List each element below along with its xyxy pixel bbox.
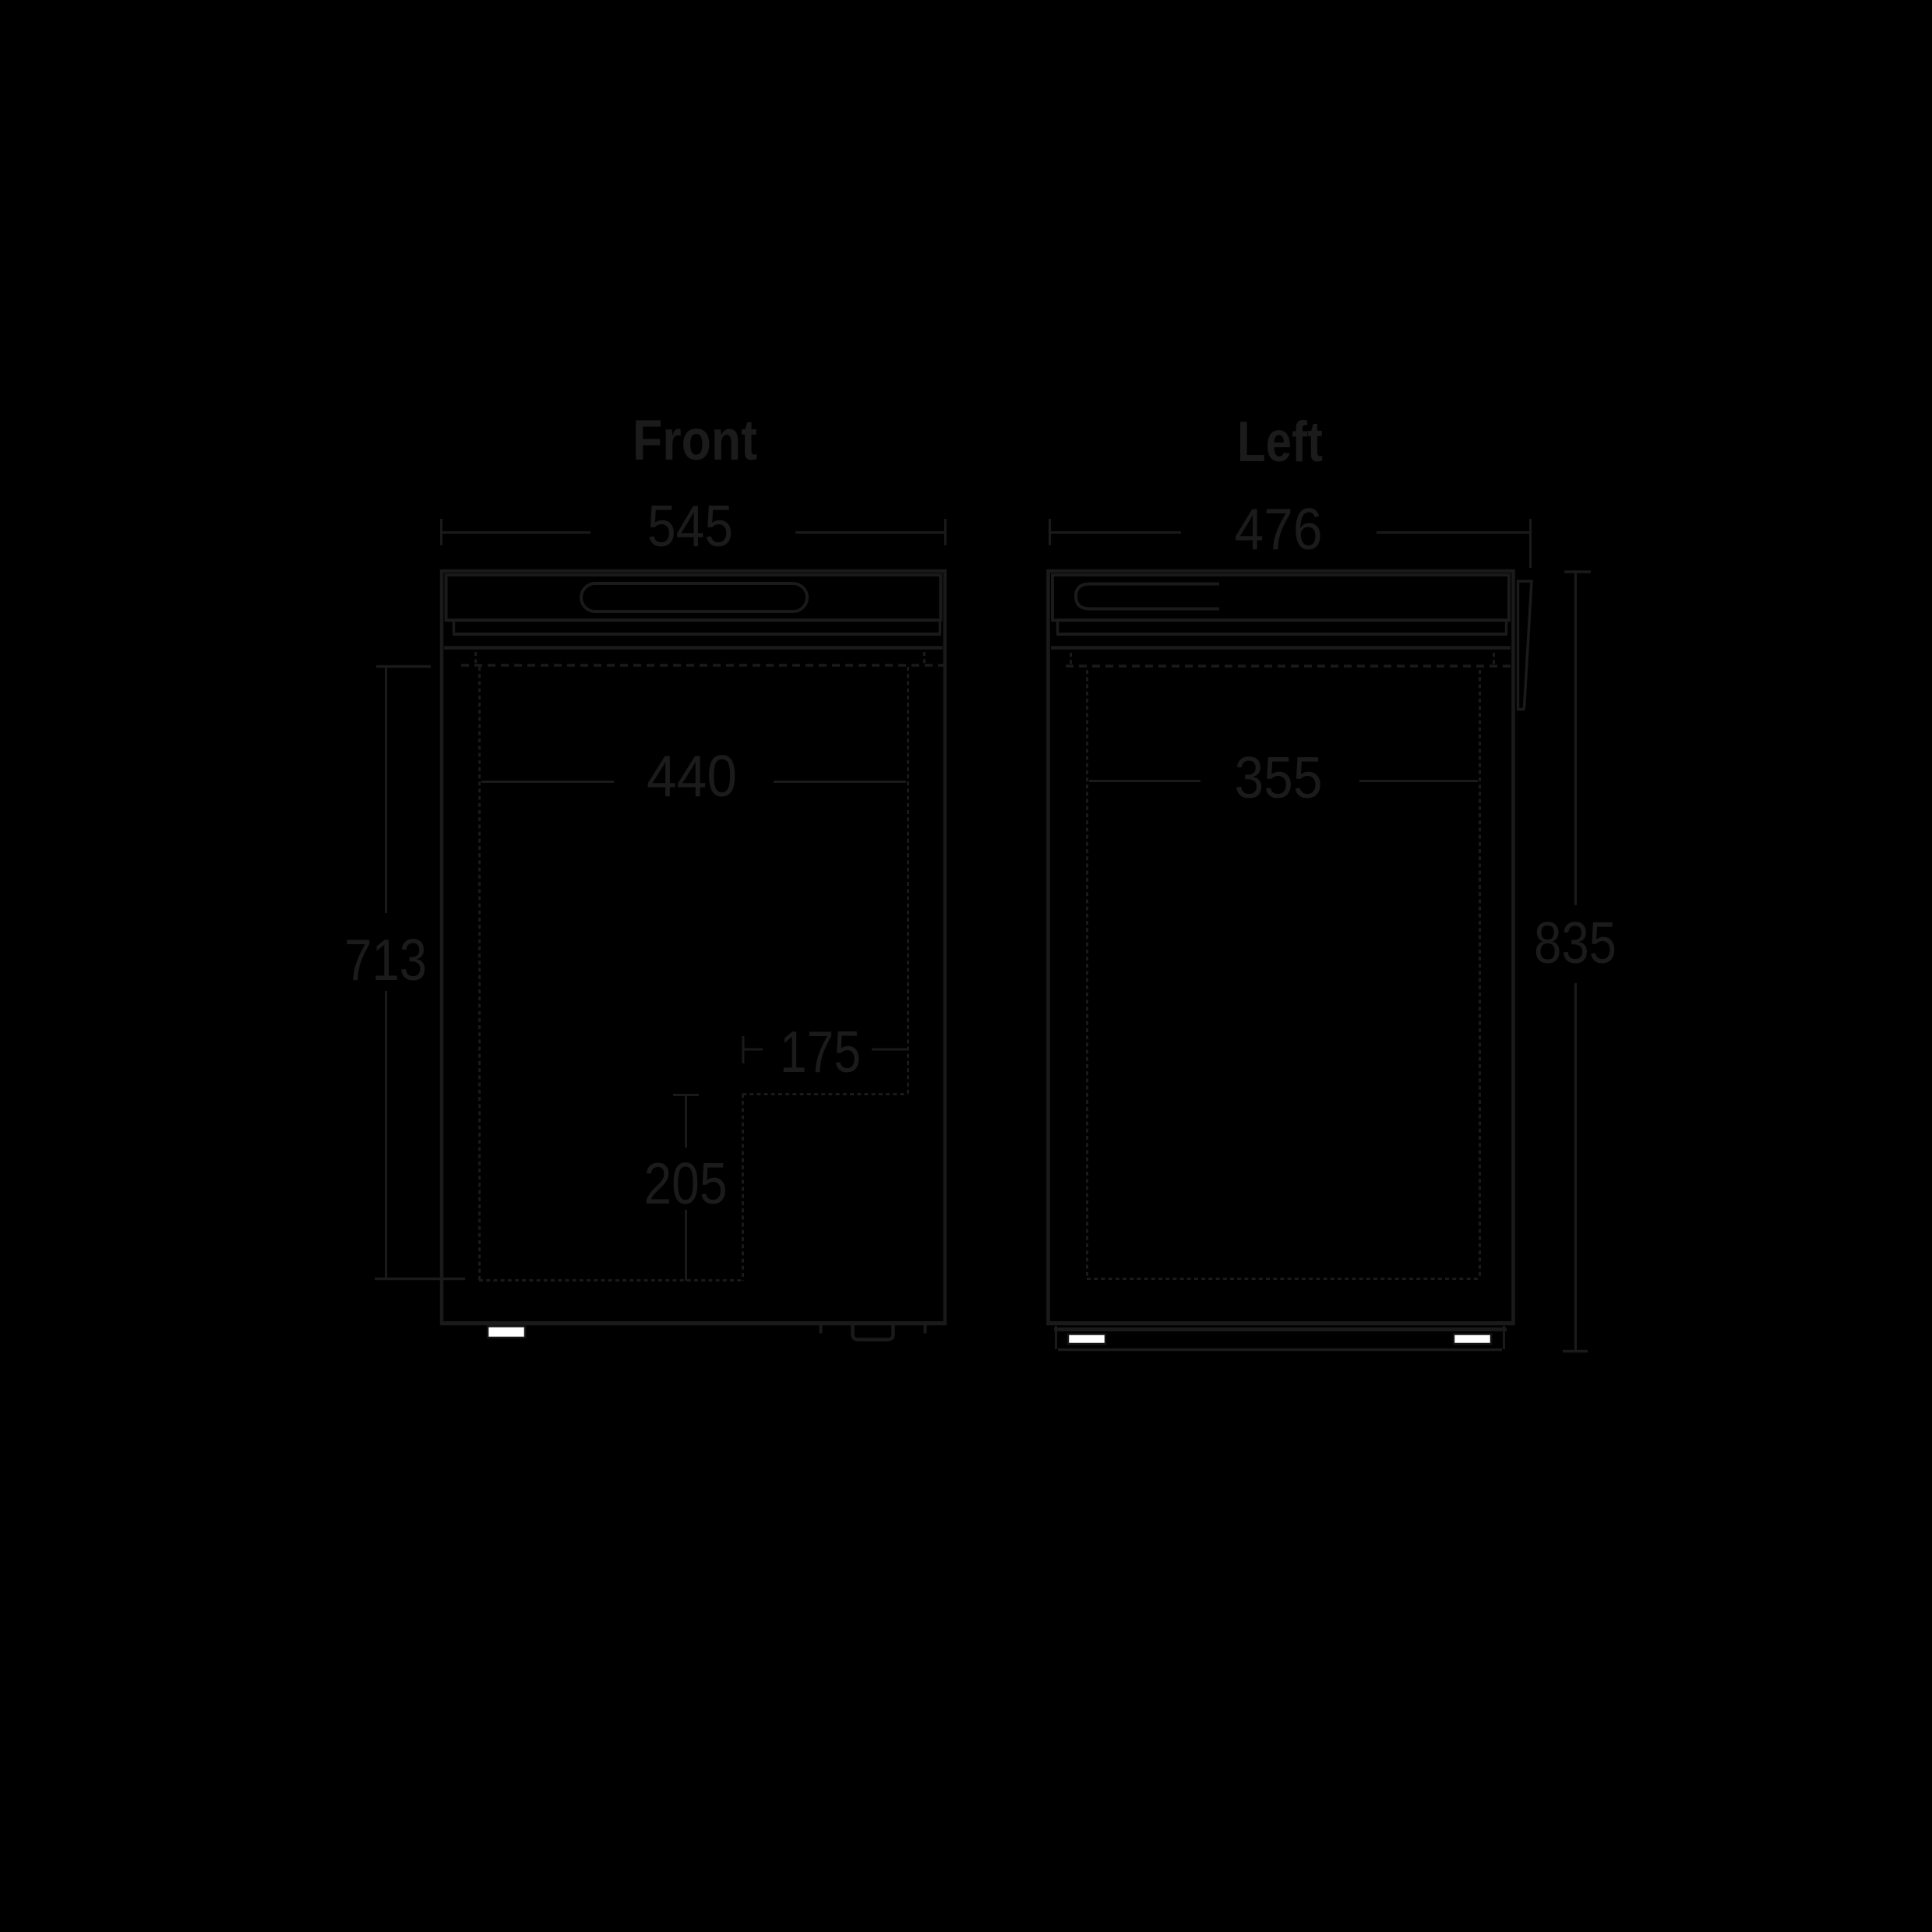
- svg-text:713: 713: [344, 927, 427, 992]
- svg-text:440: 440: [647, 743, 737, 809]
- svg-text:175: 175: [780, 1019, 861, 1084]
- svg-text:205: 205: [644, 1151, 728, 1216]
- svg-text:355: 355: [1235, 745, 1323, 810]
- svg-text:Left: Left: [1237, 411, 1323, 474]
- svg-text:476: 476: [1235, 496, 1323, 562]
- svg-text:Front: Front: [633, 409, 757, 472]
- svg-text:545: 545: [647, 493, 733, 559]
- svg-text:835: 835: [1534, 910, 1616, 975]
